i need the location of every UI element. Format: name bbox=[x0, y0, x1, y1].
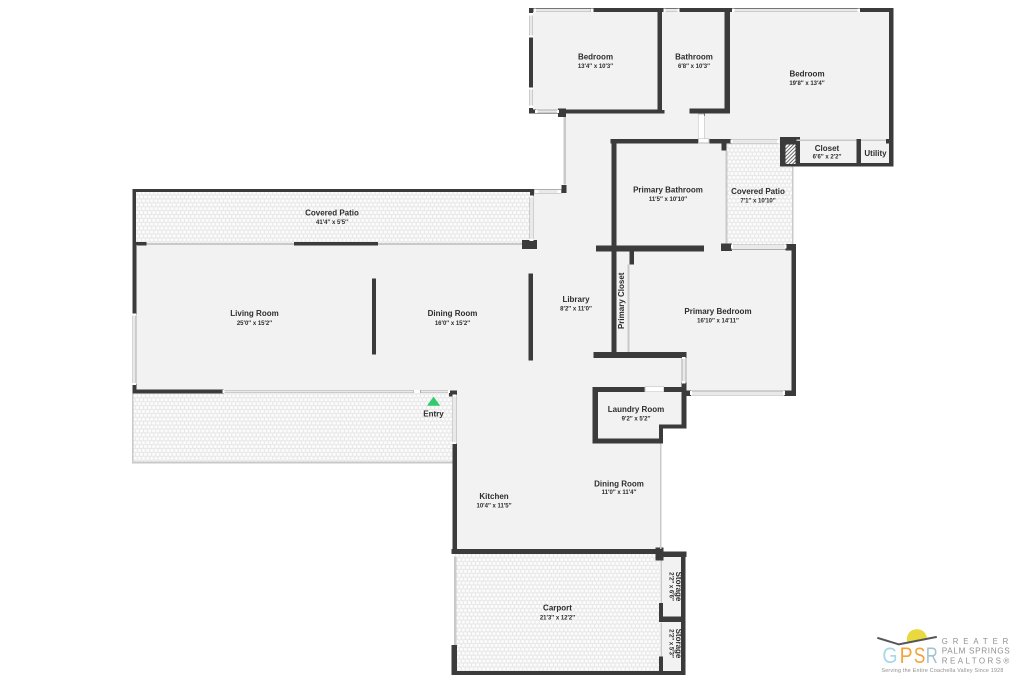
svg-text:19′8″ x 13′4″: 19′8″ x 13′4″ bbox=[789, 81, 824, 87]
svg-text:Laundry Room: Laundry Room bbox=[608, 405, 664, 414]
svg-text:16′0″ x 15′2″: 16′0″ x 15′2″ bbox=[435, 321, 470, 327]
svg-text:11′5″ x 10′10″: 11′5″ x 10′10″ bbox=[649, 197, 687, 203]
svg-text:PALM SPRINGS: PALM SPRINGS bbox=[942, 646, 1011, 655]
svg-text:Bedroom: Bedroom bbox=[578, 53, 613, 62]
svg-text:Bathroom: Bathroom bbox=[675, 53, 713, 62]
svg-text:R: R bbox=[926, 643, 938, 668]
svg-text:6′8″ x 10′3″: 6′8″ x 10′3″ bbox=[678, 64, 710, 70]
svg-text:Primary Bedroom: Primary Bedroom bbox=[684, 307, 751, 316]
svg-text:Entry: Entry bbox=[423, 410, 444, 419]
svg-text:Serving the Entire Coachella V: Serving the Entire Coachella Valley Sinc… bbox=[881, 668, 1003, 674]
svg-text:Covered Patio: Covered Patio bbox=[731, 187, 785, 196]
svg-text:Storage: Storage bbox=[674, 572, 683, 602]
svg-text:16′10″ x 14′11″: 16′10″ x 14′11″ bbox=[697, 319, 739, 325]
svg-text:21′3″ x 12′2″: 21′3″ x 12′2″ bbox=[540, 616, 575, 622]
svg-text:Covered Patio: Covered Patio bbox=[305, 209, 359, 218]
svg-text:8′2″ x 11′0″: 8′2″ x 11′0″ bbox=[560, 307, 592, 313]
svg-text:2′2″ x 6′6″: 2′2″ x 6′6″ bbox=[668, 572, 674, 601]
svg-text:GREATER: GREATER bbox=[942, 637, 1013, 646]
svg-text:Closet: Closet bbox=[815, 144, 840, 153]
svg-text:Kitchen: Kitchen bbox=[479, 492, 508, 501]
svg-text:Living Room: Living Room bbox=[230, 309, 278, 318]
svg-text:11′0″ x 11′4″: 11′0″ x 11′4″ bbox=[602, 490, 637, 496]
svg-text:6′6″ x 2′2″: 6′6″ x 2′2″ bbox=[813, 155, 842, 161]
svg-text:REALTORS®: REALTORS® bbox=[942, 657, 1012, 666]
svg-text:13′4″ x 10′3″: 13′4″ x 10′3″ bbox=[578, 64, 613, 70]
svg-text:P: P bbox=[900, 643, 913, 668]
svg-text:Storage: Storage bbox=[674, 629, 683, 659]
svg-text:S: S bbox=[914, 643, 925, 668]
svg-text:Primary Closet: Primary Closet bbox=[617, 272, 626, 329]
svg-text:Primary Bathroom: Primary Bathroom bbox=[633, 186, 703, 195]
svg-text:Bedroom: Bedroom bbox=[789, 70, 824, 79]
svg-text:10′4″ x 11′5″: 10′4″ x 11′5″ bbox=[477, 504, 512, 510]
svg-text:2′2″ x 5′3″: 2′2″ x 5′3″ bbox=[668, 629, 674, 658]
svg-text:Carport: Carport bbox=[543, 604, 572, 613]
svg-text:9′2″ x 5′2″: 9′2″ x 5′2″ bbox=[622, 417, 651, 423]
svg-text:25′0″ x 15′2″: 25′0″ x 15′2″ bbox=[237, 321, 272, 327]
svg-text:Library: Library bbox=[562, 295, 590, 304]
svg-text:Dining Room: Dining Room bbox=[594, 480, 644, 489]
svg-text:41′4″ x 5′5″: 41′4″ x 5′5″ bbox=[316, 220, 348, 226]
svg-text:Utility: Utility bbox=[864, 149, 887, 158]
svg-text:G: G bbox=[882, 643, 897, 668]
svg-text:Dining Room: Dining Room bbox=[428, 309, 478, 318]
svg-text:7′1″ x 10′10″: 7′1″ x 10′10″ bbox=[740, 199, 775, 205]
